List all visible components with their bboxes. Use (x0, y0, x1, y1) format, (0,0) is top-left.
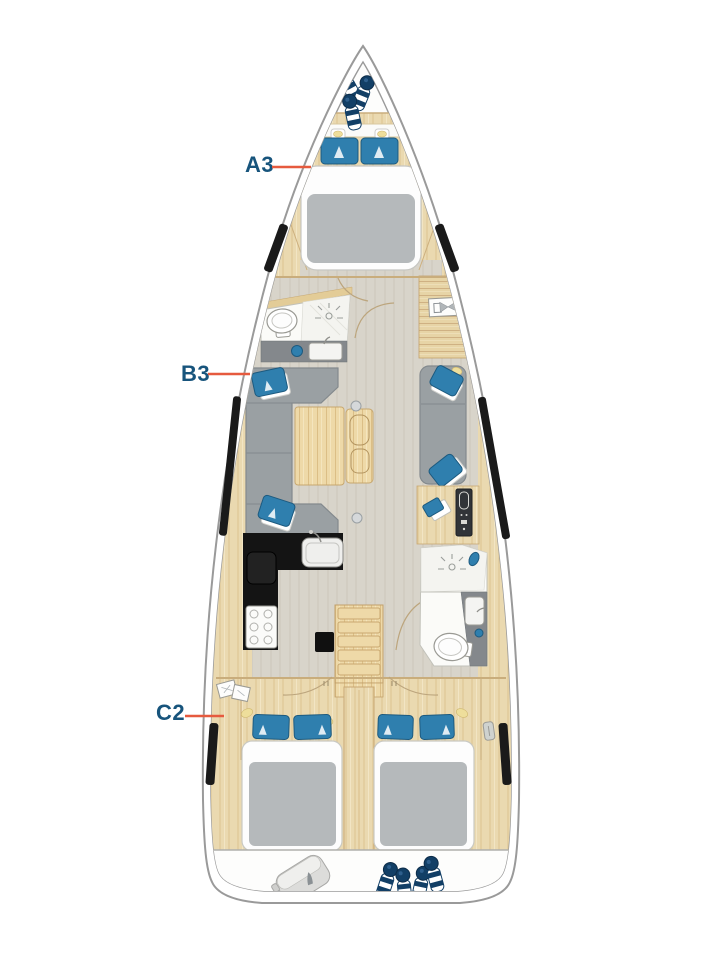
table-pedestal (352, 513, 362, 523)
pillow (378, 714, 414, 739)
pillow (321, 138, 358, 164)
table-pedestal (351, 401, 361, 411)
deck-plan-svg: A3 B3 C2 (0, 0, 720, 960)
round-sink-icon (292, 346, 303, 357)
yacht-layout-diagram: A3 B3 C2 (0, 0, 720, 960)
pillow (294, 714, 332, 739)
fridge-icon (247, 552, 276, 584)
forward-double-berth (301, 166, 421, 270)
electrical-panel (456, 489, 472, 536)
aft-port-double-berth (242, 741, 342, 851)
companionway-stairs (335, 605, 383, 697)
aft-head (420, 545, 487, 666)
forward-cabin (284, 124, 442, 270)
pillow (361, 138, 398, 164)
cabin-label-c2: C2 (156, 700, 185, 725)
nav-station (417, 486, 479, 544)
interior (195, 67, 525, 909)
pillow (253, 714, 290, 739)
aft-cabin-divider (344, 687, 374, 852)
sink-basin-icon (465, 597, 484, 625)
aft-starboard-double-berth (374, 741, 474, 851)
round-sink-icon (475, 629, 483, 637)
cabin-label-a3: A3 (245, 152, 274, 177)
mast-post (315, 632, 334, 652)
winch-handle-icon (483, 721, 495, 740)
pillow (420, 714, 455, 739)
shower-floor (301, 295, 350, 343)
stove-icon (246, 606, 277, 648)
cabin-label-b3: B3 (181, 361, 210, 386)
